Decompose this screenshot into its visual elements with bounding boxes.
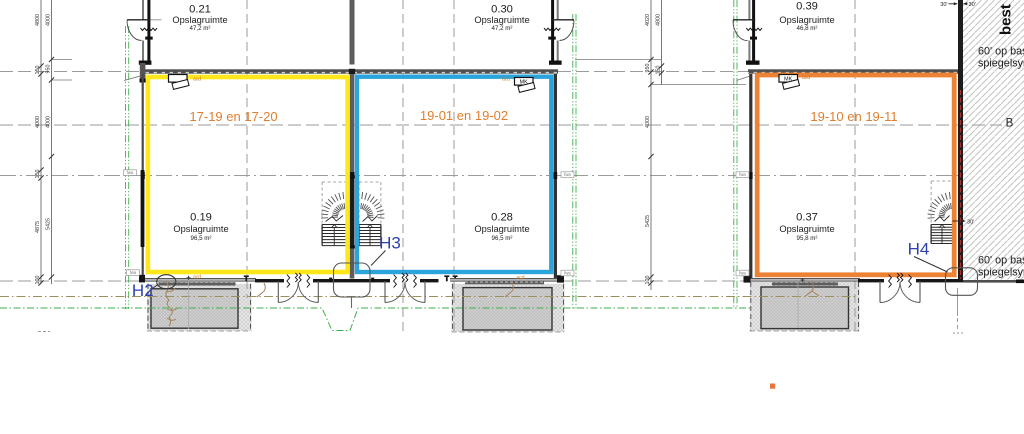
svg-text:acd: acd bbox=[516, 275, 524, 281]
svg-text:0.19: 0.19 bbox=[190, 212, 212, 224]
svg-text:950: 950 bbox=[645, 64, 651, 73]
svg-text:fwa: fwa bbox=[564, 172, 571, 177]
svg-text:19-10 en 19-11: 19-10 en 19-11 bbox=[810, 109, 897, 124]
svg-text:150: 150 bbox=[35, 170, 41, 179]
svg-text:5425: 5425 bbox=[46, 218, 52, 230]
svg-text:100: 100 bbox=[35, 276, 41, 285]
svg-text:4000: 4000 bbox=[645, 116, 651, 128]
svg-text:0.37: 0.37 bbox=[796, 212, 818, 224]
svg-text:4000: 4000 bbox=[35, 116, 41, 128]
svg-text:60' op basi: 60' op basi bbox=[978, 255, 1024, 267]
svg-text:fwa: fwa bbox=[739, 172, 746, 177]
svg-text:950: 950 bbox=[46, 65, 52, 74]
svg-text:4800: 4800 bbox=[35, 14, 41, 26]
svg-text:30': 30' bbox=[940, 2, 947, 8]
svg-text:H4: H4 bbox=[908, 240, 930, 259]
svg-text:150: 150 bbox=[35, 66, 41, 75]
svg-text:19-01 en 19-02: 19-01 en 19-02 bbox=[420, 108, 508, 123]
svg-text:Opslagruimte: Opslagruimte bbox=[172, 15, 227, 25]
svg-text:fwa: fwa bbox=[564, 271, 571, 276]
svg-text:4800: 4800 bbox=[656, 14, 662, 26]
svg-text:acd: acd bbox=[802, 75, 810, 81]
svg-text:150: 150 bbox=[656, 66, 662, 75]
svg-text:0.30: 0.30 bbox=[491, 3, 513, 15]
svg-text:30': 30' bbox=[967, 219, 974, 225]
svg-text:60' op basi: 60' op basi bbox=[978, 46, 1024, 58]
svg-text:96,5 m²: 96,5 m² bbox=[492, 235, 513, 242]
svg-text:Opslagruimte: Opslagruimte bbox=[474, 15, 529, 25]
svg-text:acd: acd bbox=[193, 77, 201, 83]
svg-text:4020: 4020 bbox=[645, 14, 651, 26]
svg-text:47,2 m²: 47,2 m² bbox=[492, 25, 513, 32]
svg-text:46,8 m²: 46,8 m² bbox=[797, 25, 818, 32]
svg-text:100: 100 bbox=[645, 276, 651, 285]
svg-text:Opslagruimte: Opslagruimte bbox=[779, 15, 834, 25]
svg-text:4000: 4000 bbox=[46, 116, 52, 128]
svg-text:fwa: fwa bbox=[127, 170, 134, 175]
svg-text:acd: acd bbox=[193, 274, 201, 280]
svg-text:H3: H3 bbox=[379, 234, 401, 253]
svg-text:47,2 m²: 47,2 m² bbox=[190, 25, 211, 32]
svg-text:B: B bbox=[1006, 118, 1014, 130]
svg-text:5425: 5425 bbox=[645, 215, 651, 227]
svg-text:fwa: fwa bbox=[130, 270, 137, 275]
svg-text:4000: 4000 bbox=[46, 14, 52, 26]
svg-text:0.21: 0.21 bbox=[189, 3, 211, 15]
svg-text:Opslagruimte: Opslagruimte bbox=[779, 224, 834, 234]
svg-text:acd: acd bbox=[502, 77, 510, 83]
svg-text:H2: H2 bbox=[132, 281, 154, 300]
svg-text:30': 30' bbox=[969, 2, 976, 8]
svg-text:spiegelsym: spiegelsym bbox=[978, 58, 1024, 70]
svg-text:4875: 4875 bbox=[35, 221, 41, 233]
svg-text:MK: MK bbox=[784, 77, 792, 83]
svg-text:0.28: 0.28 bbox=[491, 212, 513, 224]
svg-text:Opslagruimte: Opslagruimte bbox=[474, 224, 529, 234]
svg-text:95,8 m²: 95,8 m² bbox=[797, 235, 818, 242]
svg-text:fwa: fwa bbox=[739, 271, 746, 276]
svg-text:MK: MK bbox=[520, 80, 528, 86]
svg-text:best: best bbox=[998, 4, 1015, 35]
svg-text:spiegelsym: spiegelsym bbox=[978, 267, 1024, 279]
svg-text:17-19 en 17-20: 17-19 en 17-20 bbox=[189, 109, 277, 124]
svg-text:96,5 m²: 96,5 m² bbox=[191, 235, 212, 242]
svg-text:Opslagruimte: Opslagruimte bbox=[173, 224, 228, 234]
svg-text:0.39: 0.39 bbox=[796, 1, 818, 13]
